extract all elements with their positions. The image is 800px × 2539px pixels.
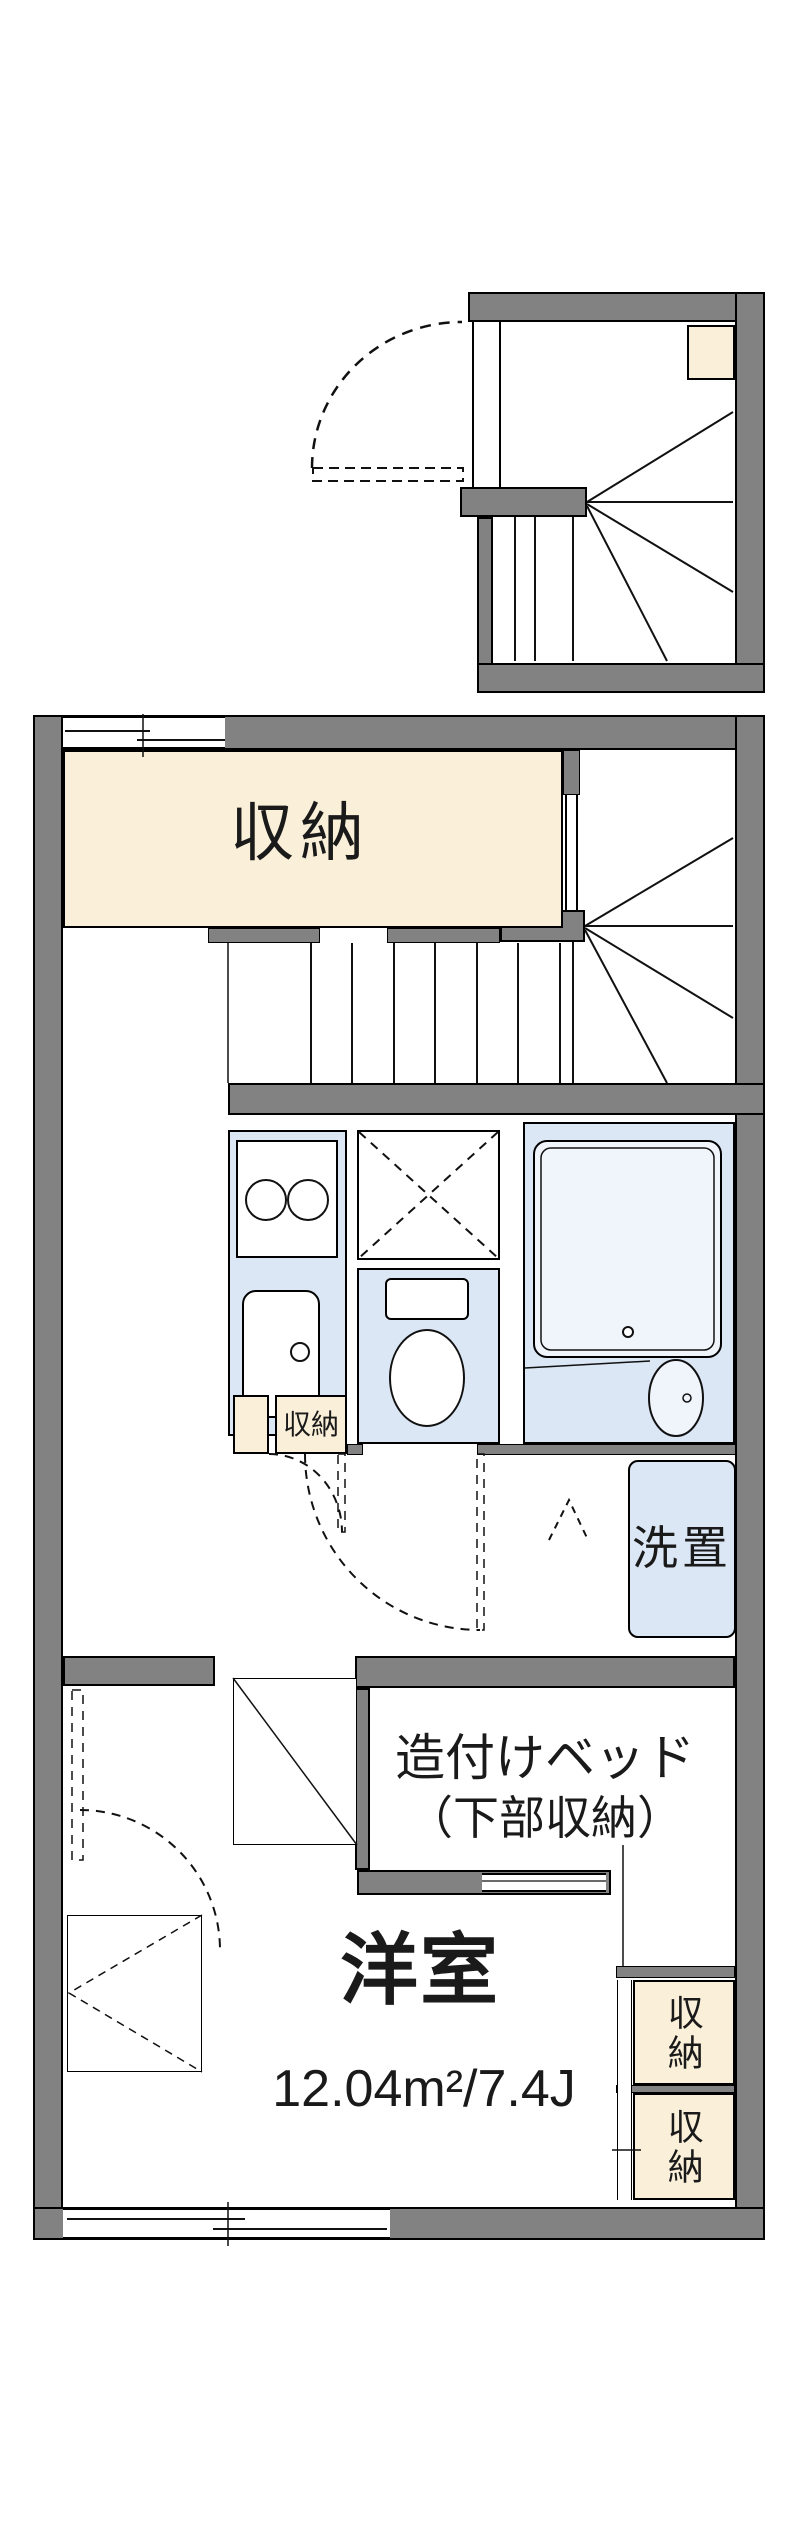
wall-storage-right bbox=[563, 750, 580, 795]
window-top bbox=[63, 716, 225, 749]
wall-storage-bottom-right bbox=[387, 928, 500, 943]
wall-1f-right bbox=[735, 292, 765, 693]
wall-hall-bed-left bbox=[63, 1656, 215, 1686]
closet-right-top-label: 収納 bbox=[664, 1994, 702, 2074]
window-bottom bbox=[63, 2208, 390, 2239]
wall-bed-left bbox=[355, 1688, 370, 1870]
storage-room-label: 収納 bbox=[180, 800, 420, 867]
closet-right-bottom-label: 収納 bbox=[664, 2108, 702, 2188]
wall-bed-top bbox=[355, 1656, 735, 1688]
wall-stair-bottom bbox=[228, 1083, 765, 1115]
wall-2f-left bbox=[33, 715, 63, 2240]
wall-1f-stair-left bbox=[477, 517, 493, 665]
storage-door-panel bbox=[565, 795, 578, 912]
room-area-label: 12.04m²/7.4J bbox=[254, 2062, 594, 2117]
wall-1f-bottom bbox=[477, 663, 765, 693]
toilet-tank bbox=[385, 1278, 469, 1320]
wall-closet-column-top bbox=[616, 1966, 735, 1978]
wall-closet-divider bbox=[616, 2085, 735, 2093]
wall-sanitary-bottom-right bbox=[477, 1444, 736, 1455]
wall-1f-stair-bar bbox=[460, 487, 587, 517]
wall-sanitary-bottom-left bbox=[347, 1444, 363, 1455]
bed-wall-opening bbox=[482, 1873, 606, 1892]
stove bbox=[236, 1140, 338, 1258]
closet-box bbox=[233, 1678, 357, 1845]
entrance-door-icon bbox=[312, 322, 463, 481]
vent-box bbox=[357, 1130, 500, 1260]
wall-1f-top bbox=[468, 292, 765, 322]
room-title-label: 洋室 bbox=[320, 1930, 520, 2012]
wall-1f-entry-thin bbox=[472, 322, 501, 489]
wash-place-label: 洗置 bbox=[630, 1524, 734, 1572]
hall-storage-label: 収納 bbox=[276, 1410, 346, 1439]
closet-track bbox=[617, 1980, 632, 2200]
left-window-box bbox=[67, 1915, 202, 2072]
hall-storage-left-part bbox=[233, 1395, 269, 1454]
shoe-cabinet bbox=[687, 325, 735, 380]
wall-2f-right bbox=[735, 715, 765, 2240]
stair-1f-icon bbox=[515, 412, 733, 661]
floorplan-canvas: 収納 収納 洗置 造付けベッド （下部収納） 洋室 12.04m²/7.4J 収… bbox=[0, 0, 800, 2539]
wall-storage-bottom-left bbox=[208, 928, 320, 943]
bathtub bbox=[533, 1140, 722, 1358]
built-in-bed-label-line1: 造付けベッド bbox=[385, 1732, 705, 1785]
built-in-bed-label-line2: （下部収納） bbox=[385, 1794, 705, 1842]
